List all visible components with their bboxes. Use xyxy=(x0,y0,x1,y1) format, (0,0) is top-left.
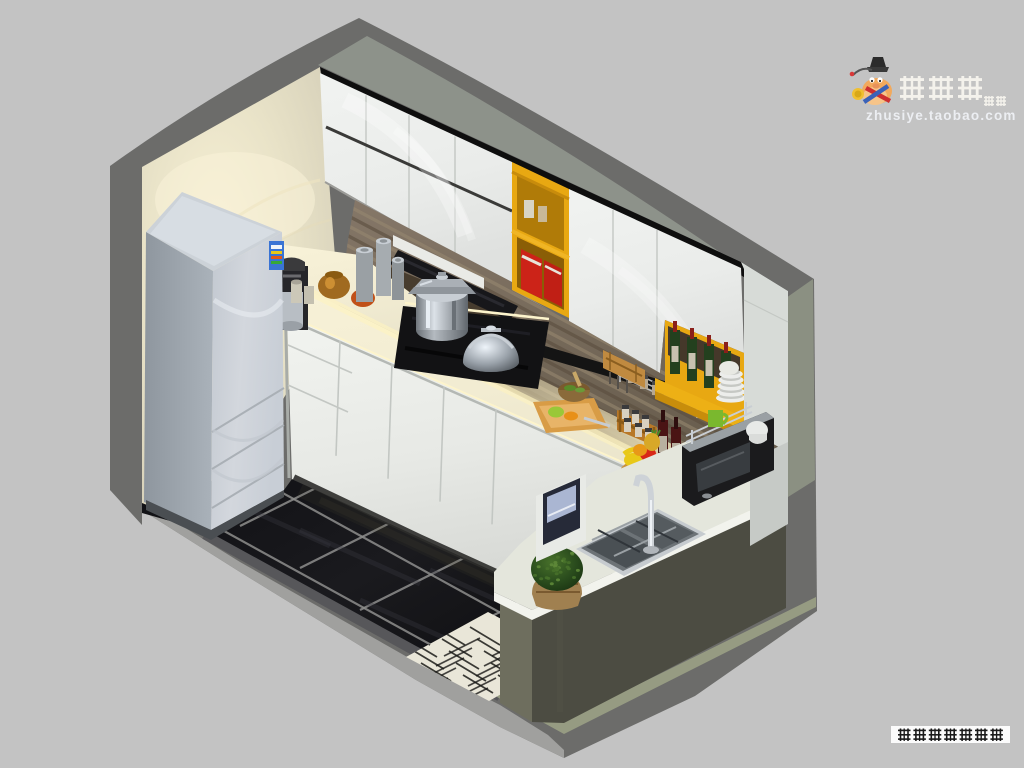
svg-text:zhusiye.taobao.com: zhusiye.taobao.com xyxy=(866,108,1017,123)
